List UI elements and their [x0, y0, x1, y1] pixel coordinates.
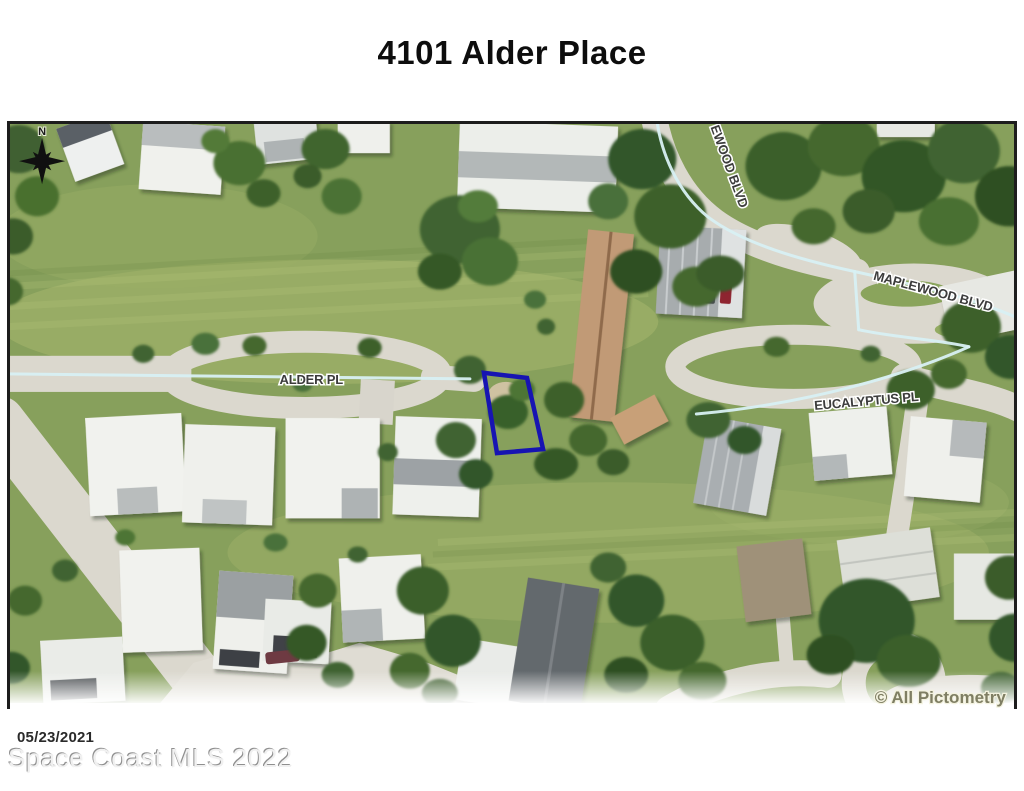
compass-north-label: N [38, 126, 46, 138]
aerial-photo-graphic: ALDER PL MAPLEWOOD BLVD EWOOD BLVD EUCAL… [7, 121, 1017, 709]
photo-bottom-edge [7, 703, 1017, 709]
aerial-map: ALDER PL MAPLEWOOD BLVD EWOOD BLVD EUCAL… [7, 121, 1017, 709]
street-label-alder: ALDER PL [280, 372, 344, 387]
photo-bottom-fade [7, 671, 1017, 705]
mls-watermark: Space Coast MLS 2022 [8, 743, 293, 774]
imagery-copyright-watermark: © All Pictometry [875, 688, 1007, 707]
page-title: 4101 Alder Place [0, 34, 1024, 72]
listing-page: 4101 Alder Place [0, 0, 1024, 791]
